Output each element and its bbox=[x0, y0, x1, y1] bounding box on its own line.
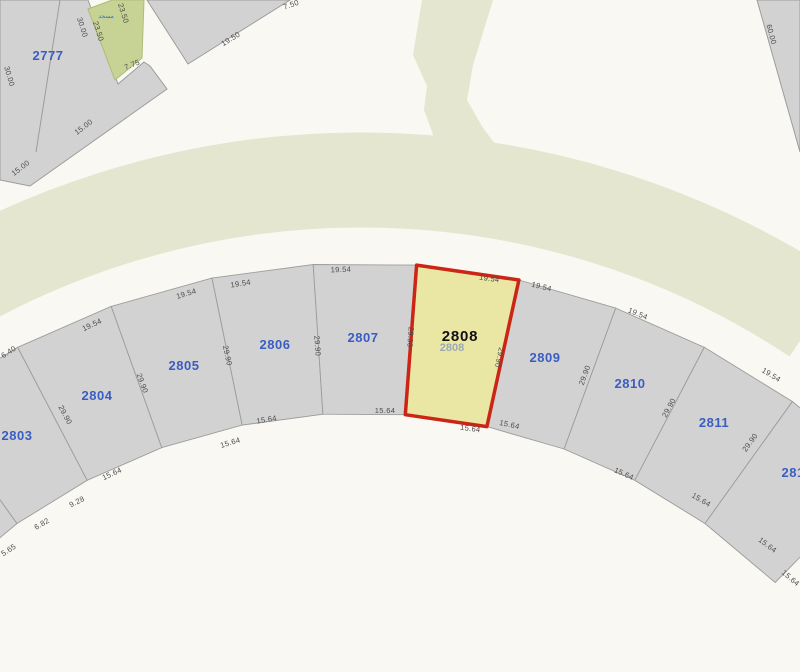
parcel-number-2809: 2809 bbox=[530, 350, 561, 365]
parcel-number-2806: 2806 bbox=[260, 337, 291, 352]
dimension-label: 29.90 bbox=[405, 327, 415, 348]
parcel-number-2803: 2803 bbox=[2, 428, 33, 443]
parcel-number-2777: 2777 bbox=[33, 48, 64, 63]
parcel-number-2812: 2812 bbox=[782, 465, 800, 480]
dimension-label: 29.90 bbox=[312, 335, 322, 356]
parcel-number-2811: 2811 bbox=[699, 415, 729, 430]
parcel-number-2804: 2804 bbox=[82, 388, 113, 403]
dimension-label: 15.64 bbox=[375, 406, 396, 415]
cadastral-map: 2803280428052806280728082808280928102811… bbox=[0, 0, 800, 672]
parcel-number-2807: 2807 bbox=[348, 330, 379, 345]
map-canvas: 2803280428052806280728082808280928102811… bbox=[0, 0, 800, 672]
parcel-number-2805: 2805 bbox=[169, 358, 200, 373]
mosque-label: مسجد bbox=[98, 14, 114, 20]
parcel-number-2808: 2808 bbox=[442, 328, 479, 345]
dimension-label: 19.54 bbox=[331, 265, 352, 275]
parcel-number-2810: 2810 bbox=[615, 376, 646, 391]
